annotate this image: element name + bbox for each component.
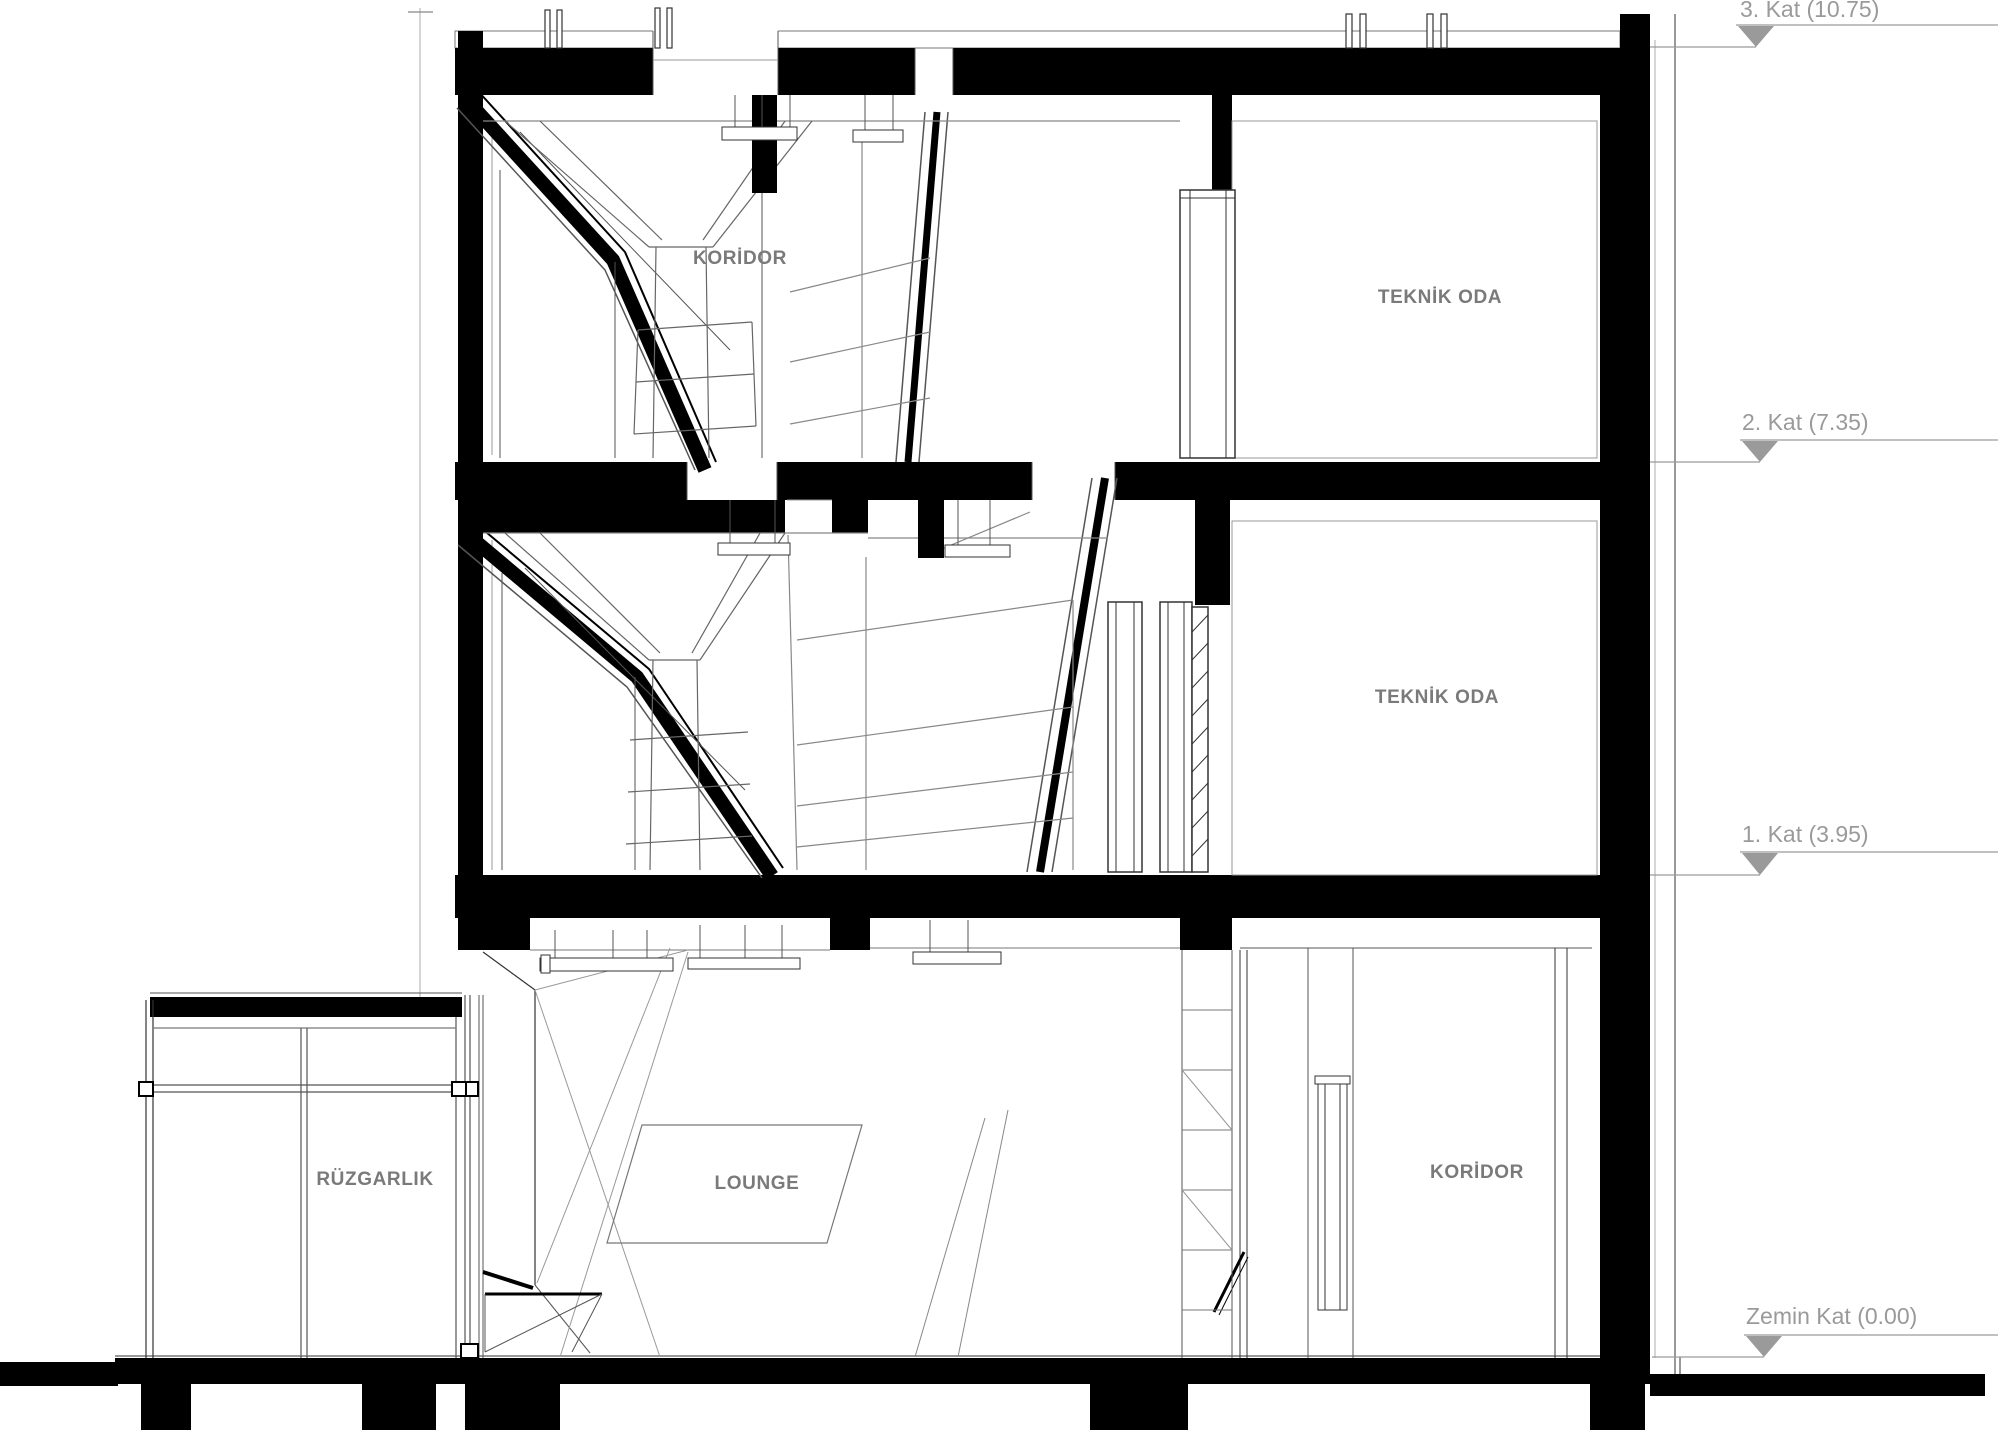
level-marker-icon — [1742, 853, 1778, 875]
room-label-koridor-ground: KORİDOR — [1430, 1162, 1524, 1184]
lounge-interior — [483, 948, 1232, 1358]
level-label-1-kat: 1. Kat (3.95) — [1742, 821, 1869, 848]
door-handle-icon — [139, 1082, 153, 1096]
level-markers — [1738, 26, 1782, 1357]
room-label-ruzgarlik: RÜZGARLIK — [316, 1169, 433, 1191]
hatched-shaft — [1192, 607, 1208, 872]
foundation-footings — [141, 1384, 1645, 1430]
lounge-shelf — [1182, 950, 1232, 1358]
doors-middle-floor — [1108, 602, 1208, 872]
roof-slab — [455, 14, 1650, 95]
room-label-lounge: LOUNGE — [715, 1173, 800, 1195]
ceiling-perspective-upper — [483, 121, 1180, 458]
level-label-2-kat: 2. Kat (7.35) — [1742, 409, 1869, 436]
level-marker-icon — [1738, 26, 1774, 47]
room-label-teknik-oda-middle: TEKNİK ODA — [1375, 687, 1499, 709]
room-label-koridor-upper: KORİDOR — [693, 248, 787, 270]
level-marker-icon — [1742, 441, 1778, 462]
lounge-step — [483, 1272, 602, 1352]
stair-flight-upper — [457, 90, 948, 470]
section-linework — [0, 0, 2000, 1430]
door-upper-floor — [1180, 190, 1235, 458]
building-section-drawing: KORİDOR TEKNİK ODA TEKNİK ODA RÜZGARLIK … — [0, 0, 2000, 1430]
level-marker-icon — [1746, 1336, 1782, 1357]
slab-level-1 — [455, 875, 1650, 950]
ground-slab — [0, 1356, 1985, 1396]
level-label-3-kat: 3. Kat (10.75) — [1740, 0, 1879, 23]
level-label-zemin-kat: Zemin Kat (0.00) — [1746, 1303, 1917, 1330]
glass-facade-ground — [461, 995, 483, 1358]
door-handle-icon — [452, 1082, 466, 1096]
door-handle-icon — [461, 1344, 478, 1358]
corridor-ground — [1214, 948, 1592, 1358]
room-label-teknik-oda-upper: TEKNİK ODA — [1378, 287, 1502, 309]
exterior-wall-right — [1600, 48, 1650, 1358]
level-lines — [1648, 25, 1998, 1357]
ceiling-perspective-middle — [483, 512, 1108, 870]
